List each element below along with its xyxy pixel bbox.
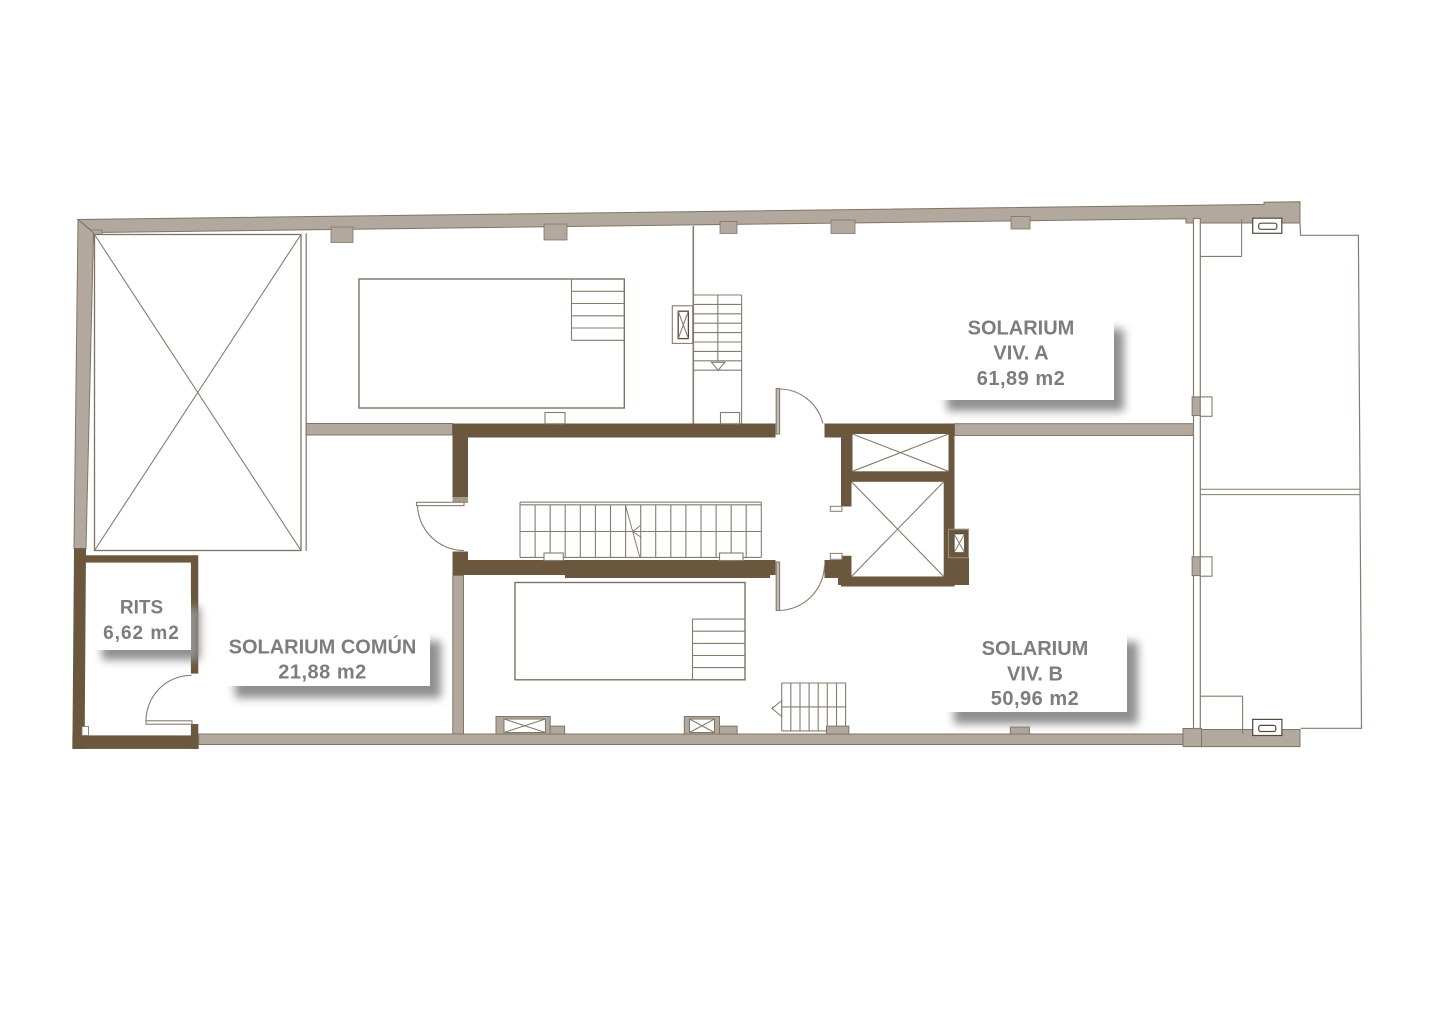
svg-text:SOLARIUM COMÚN: SOLARIUM COMÚN <box>229 635 417 659</box>
svg-text:VIV. B: VIV. B <box>1007 664 1063 686</box>
svg-text:50,96 m2: 50,96 m2 <box>991 688 1080 710</box>
svg-text:61,89 m2: 61,89 m2 <box>977 368 1066 390</box>
svg-text:21,88 m2: 21,88 m2 <box>278 662 367 684</box>
svg-text:RITS: RITS <box>120 598 163 619</box>
svg-text:VIV. A: VIV. A <box>993 343 1048 365</box>
svg-text:SOLARIUM: SOLARIUM <box>982 638 1089 660</box>
svg-text:SOLARIUM: SOLARIUM <box>968 318 1075 340</box>
svg-text:6,62 m2: 6,62 m2 <box>103 623 180 644</box>
